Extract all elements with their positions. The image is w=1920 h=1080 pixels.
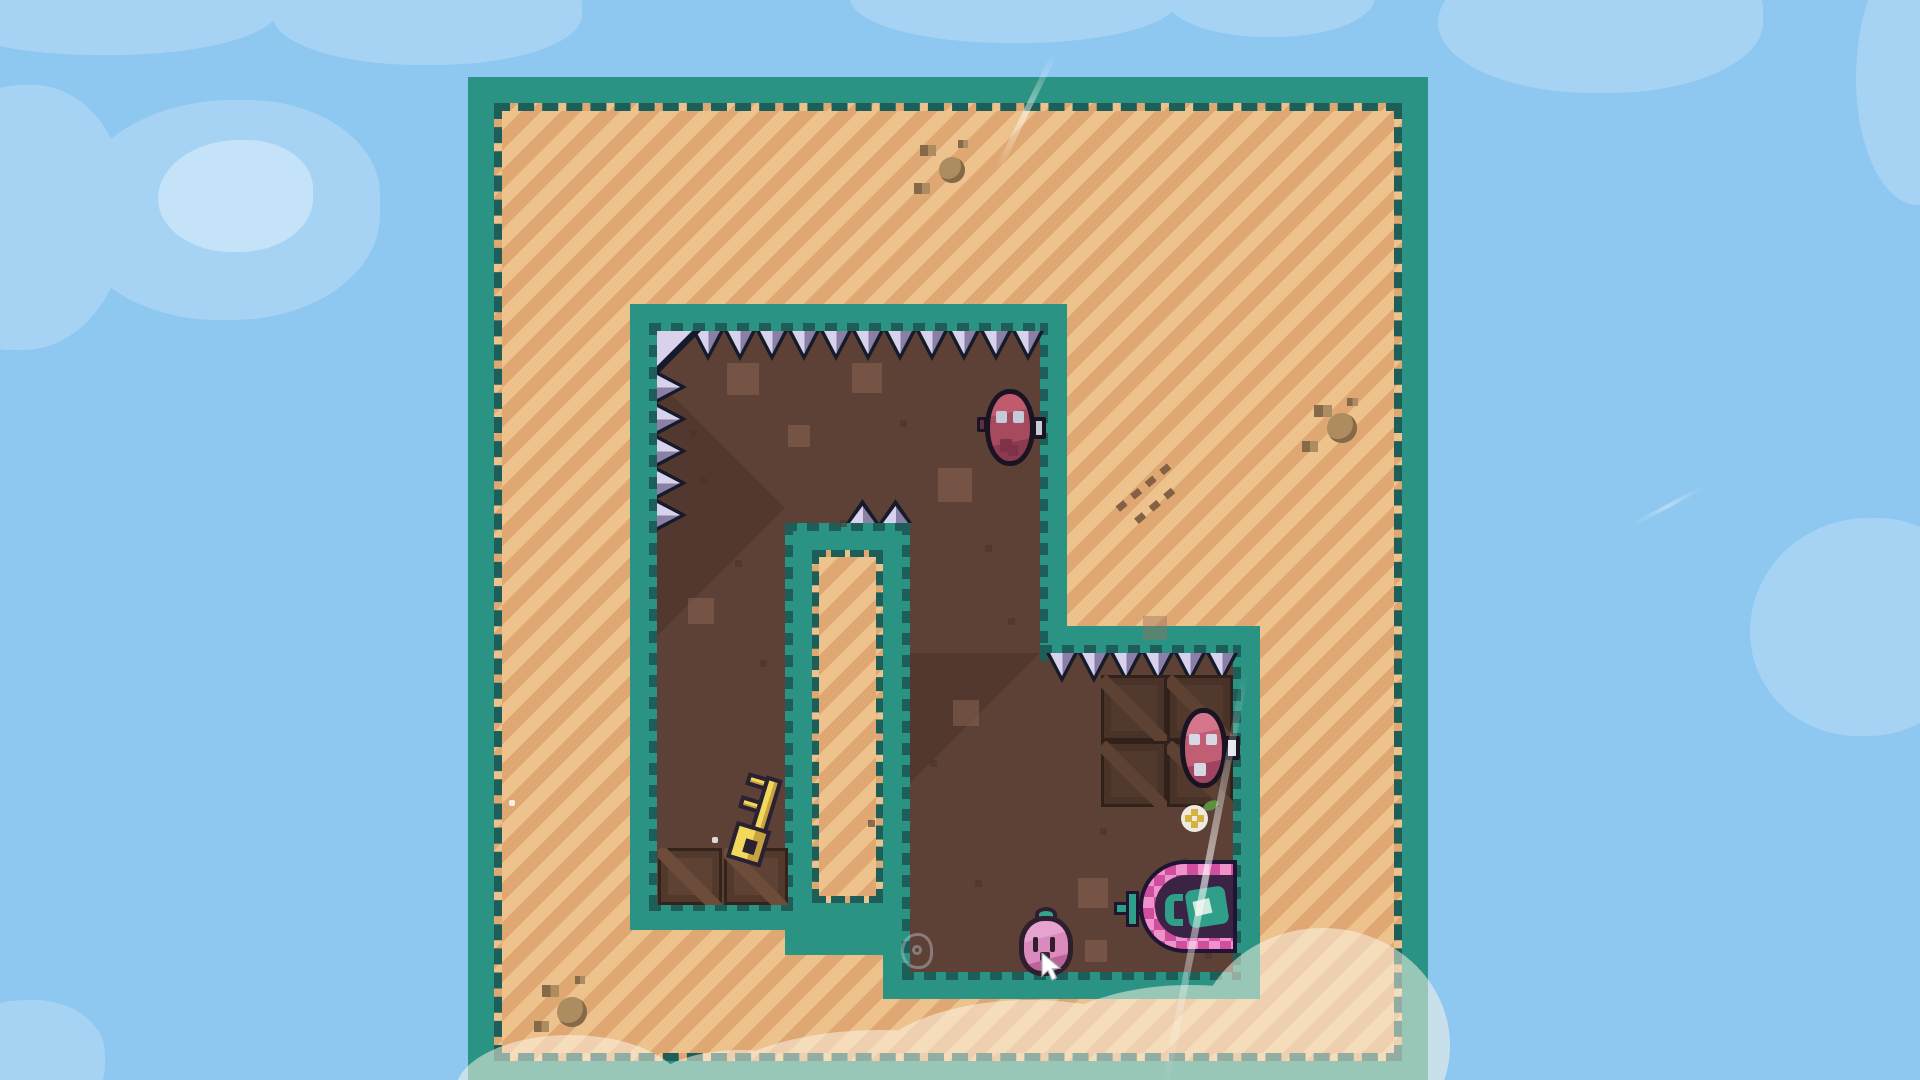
wall-pillar [812, 550, 883, 903]
wall-stitch [902, 523, 910, 980]
sky-cloud [850, 0, 1180, 43]
wall-stitch [649, 323, 657, 911]
pebble-bit [1314, 405, 1332, 417]
enemy-eye [1189, 734, 1200, 745]
sky-cloud [158, 140, 313, 252]
dirt-patch [852, 363, 882, 393]
dirt-patch [688, 598, 714, 624]
dirt-dot [735, 560, 742, 567]
enemy-blob-1 [985, 389, 1035, 466]
capsule-camera-icon [1184, 885, 1229, 929]
sky-cloud [1750, 518, 1920, 736]
sky-cloud [1856, 0, 1920, 205]
dirt-dot [1008, 618, 1015, 625]
wall-stitch [1040, 323, 1048, 661]
sky-cloud [0, 1000, 105, 1080]
pillar-base [785, 903, 910, 955]
pebble-bit [914, 183, 930, 194]
player-body [1019, 916, 1073, 976]
capsule-bracket-icon [1165, 894, 1183, 926]
key-bow-hole [742, 838, 758, 855]
enemy-spot [1194, 763, 1206, 776]
wall-stitch [1040, 645, 1241, 653]
dirt-patch [1078, 878, 1108, 908]
flower-center-pixel [1185, 815, 1192, 822]
pebble [939, 157, 965, 183]
pebble-bit [958, 140, 968, 148]
enemy-eye [1206, 734, 1217, 745]
dirt-dot [975, 880, 982, 887]
pebble-bit [542, 985, 559, 997]
flower-center-pixel [1191, 821, 1198, 828]
crate [1101, 741, 1167, 807]
player-eye [1033, 937, 1038, 952]
pebble-bit [920, 145, 936, 156]
dirt-patch [953, 700, 979, 726]
sky-cloud [0, 0, 280, 55]
dirt-patch [788, 425, 810, 447]
capsule-camera-lens [1193, 898, 1213, 916]
enemy-body [1180, 708, 1227, 788]
exit-capsule [1139, 860, 1237, 953]
pebble-bit [1302, 441, 1318, 452]
lens-flare [1632, 485, 1705, 526]
pebble [557, 997, 587, 1027]
dirt-patch [727, 363, 759, 395]
dirt-dot [1100, 828, 1107, 835]
player-character [1019, 916, 1073, 976]
crate [1101, 675, 1167, 741]
enemy-eye [1013, 411, 1024, 423]
sky-cloud [1165, 0, 1375, 37]
dirt-dot [840, 520, 847, 527]
crate [658, 848, 722, 905]
sparkle-dot [712, 837, 718, 843]
capsule-plug [1126, 891, 1139, 927]
enemy-spot [1008, 445, 1018, 456]
player-eye [1050, 937, 1055, 952]
dirt-dot [690, 430, 697, 437]
dirt-dot [868, 820, 875, 827]
dirt-dot [700, 478, 707, 485]
wall-stitch [649, 323, 1048, 331]
sky-cloud [272, 0, 582, 65]
wall-stitch [785, 523, 910, 531]
swirl-inner [912, 945, 922, 955]
dirt-dot [930, 760, 937, 767]
enemy-blob-2 [1180, 708, 1227, 788]
dirt-dot [985, 545, 992, 552]
dirt-dot [1205, 952, 1212, 959]
sparkle-dot [509, 800, 515, 806]
dirt-dot [900, 420, 907, 427]
enemy-eye [996, 411, 1007, 423]
sky-cloud [1438, 0, 1763, 93]
swirl-doodle [901, 933, 933, 969]
player-mouth [1040, 952, 1050, 961]
pebble [1327, 413, 1357, 443]
pebble-bit [534, 1021, 549, 1032]
flower-center-pixel [1197, 815, 1204, 822]
pebble-bit [575, 976, 585, 984]
dirt-patch [938, 468, 972, 502]
flower [1181, 801, 1215, 835]
dirt-dot [760, 660, 767, 667]
pebble-bit [1347, 398, 1358, 406]
game-viewport[interactable] [0, 0, 1920, 1080]
dirt-patch [1143, 616, 1167, 640]
dirt-patch [1085, 940, 1107, 962]
